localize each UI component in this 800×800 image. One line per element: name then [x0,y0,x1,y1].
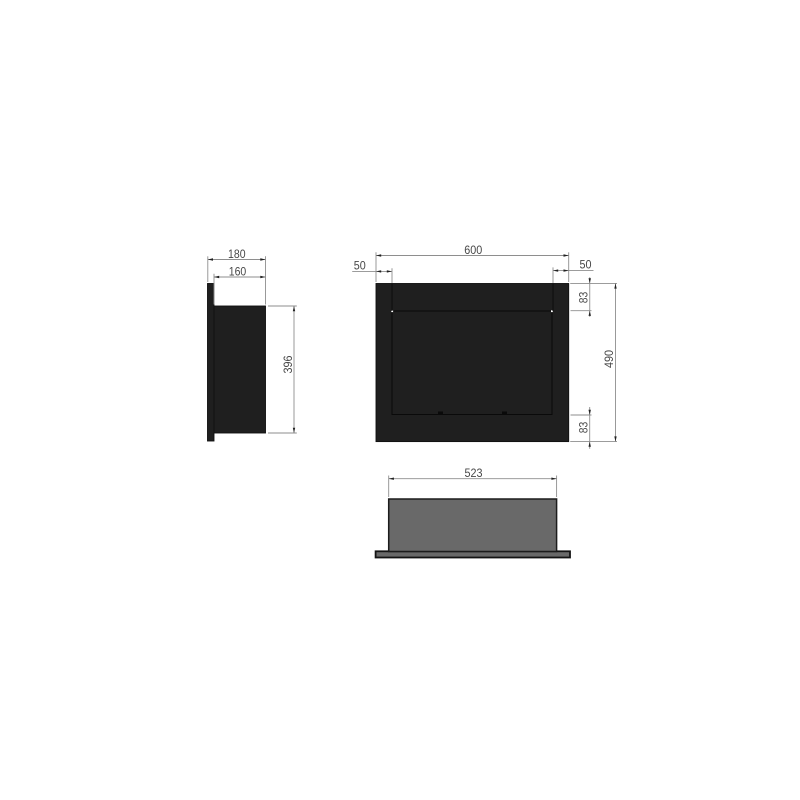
svg-text:396: 396 [283,356,295,374]
svg-text:83: 83 [579,422,591,434]
svg-text:160: 160 [229,267,247,279]
svg-text:180: 180 [228,249,246,261]
svg-text:600: 600 [464,245,482,257]
svg-text:83: 83 [579,292,591,304]
svg-text:490: 490 [604,350,616,368]
svg-text:50: 50 [354,260,366,272]
svg-text:50: 50 [580,260,592,272]
svg-text:523: 523 [465,468,483,480]
